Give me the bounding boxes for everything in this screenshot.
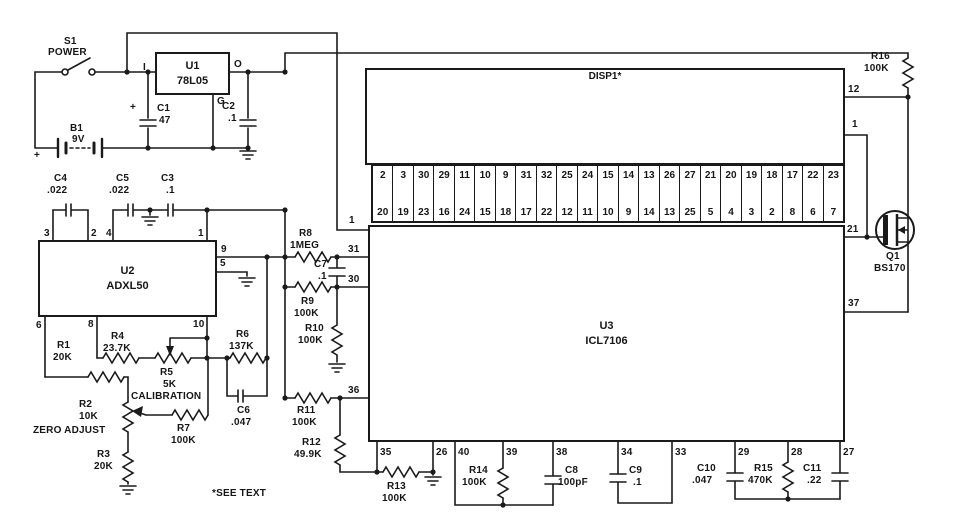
u2-ref: U2	[120, 264, 134, 278]
display-pin: 3	[400, 170, 406, 181]
u3-pin: 12	[562, 207, 573, 218]
display-pin: 32	[541, 170, 552, 181]
u3-pin: 14	[643, 207, 654, 218]
c6-value: .047	[231, 417, 251, 428]
r12-ref: R12	[302, 437, 321, 448]
lcd-display	[365, 68, 845, 165]
c11-value: .22	[807, 475, 822, 486]
u1-ref: U1	[185, 59, 199, 73]
u3-pin: 6	[810, 207, 816, 218]
u3-pin: 9	[626, 207, 632, 218]
q1-part: BS170	[874, 263, 906, 274]
r2-value: 10K	[79, 411, 98, 422]
u3-pin: 17	[521, 207, 532, 218]
u3-pin: 22	[541, 207, 552, 218]
u3-pin26: 26	[436, 447, 448, 458]
display-pin12: 12	[848, 84, 860, 95]
c1-plus: +	[130, 102, 136, 113]
pin-column: 1015	[475, 166, 495, 221]
b1-plus: +	[34, 150, 40, 161]
c9-value: .1	[633, 477, 642, 488]
c1-value: 47	[159, 115, 171, 126]
c9-ref: C9	[629, 465, 642, 476]
pin-column: 2916	[434, 166, 454, 221]
r4-ref: R4	[111, 331, 124, 342]
u3-pin: 11	[582, 207, 593, 218]
u3-pin: 7	[831, 207, 837, 218]
u3-pin: 25	[684, 207, 695, 218]
pin-column: 1124	[455, 166, 475, 221]
u2-pin10: 10	[193, 319, 205, 330]
c2-value: .1	[228, 113, 237, 124]
c1-ref: C1	[157, 103, 170, 114]
c5-value: .022	[109, 185, 129, 196]
c8-ref: C8	[565, 465, 578, 476]
u1-pin-in: I	[143, 62, 146, 73]
u3-pin30: 30	[348, 274, 360, 285]
pin-column: 3117	[516, 166, 536, 221]
u3-pin: 8	[790, 207, 796, 218]
r2-function-label: ZERO ADJUST	[33, 425, 105, 436]
pin-column: 204	[721, 166, 741, 221]
r5-ref: R5	[160, 367, 173, 378]
display-pin-block: 220 319 3023 2916 1124 1015 918 3117 322…	[371, 165, 845, 223]
c2-ref: C2	[222, 101, 235, 112]
display-pin: 30	[418, 170, 429, 181]
see-text-note: *SEE TEXT	[212, 488, 266, 499]
u3-pin: 18	[500, 207, 511, 218]
u3-pin: 20	[377, 207, 388, 218]
display-pin: 31	[521, 170, 532, 181]
r5-function-label: CALIBRATION	[131, 391, 201, 402]
u3-ref: U3	[599, 319, 613, 333]
c7-value: .1	[318, 271, 327, 282]
display-pin: 14	[623, 170, 634, 181]
display-pin: 23	[828, 170, 839, 181]
pin-column: 2613	[660, 166, 680, 221]
r9-value: 100K	[294, 308, 319, 319]
r11-value: 100K	[292, 417, 317, 428]
display-pin: 18	[766, 170, 777, 181]
u3-pin1: 1	[349, 215, 355, 226]
pin-column: 178	[783, 166, 803, 221]
c4-ref: C4	[54, 173, 67, 184]
r13-ref: R13	[387, 481, 406, 492]
r2-ref: R2	[79, 399, 92, 410]
r1-ref: R1	[57, 340, 70, 351]
u3-pin29: 29	[738, 447, 750, 458]
r9-ref: R9	[301, 296, 314, 307]
c3-ref: C3	[161, 173, 174, 184]
u1-pin-out: O	[234, 59, 242, 70]
u2-pin4: 4	[106, 228, 112, 239]
display-pin: 11	[459, 170, 470, 181]
b1-value: 9V	[72, 134, 85, 145]
pin-column: 215	[701, 166, 721, 221]
u1-part: 78L05	[177, 74, 208, 88]
u3-pin: 3	[749, 207, 755, 218]
u2-pin6: 6	[36, 320, 42, 331]
display-pin: 2	[380, 170, 386, 181]
pin-column: 182	[762, 166, 782, 221]
r7-ref: R7	[177, 423, 190, 434]
r13-value: 100K	[382, 493, 407, 504]
u3-pin33: 33	[675, 447, 687, 458]
schematic-page: DISP1* 18.88 U1 78L05 U2 ADXL50 U3 ICL71…	[0, 0, 967, 517]
r8-value: 1MEG	[290, 240, 319, 251]
u3-pin: 19	[398, 207, 409, 218]
u3-pin40: 40	[458, 447, 470, 458]
display-pin: 24	[582, 170, 593, 181]
c4-value: .022	[47, 185, 67, 196]
u3-pin: 13	[664, 207, 675, 218]
pin-column: 2411	[578, 166, 598, 221]
ic-u1-regulator: U1 78L05	[155, 52, 230, 95]
r14-ref: R14	[469, 465, 488, 476]
r1-value: 20K	[53, 352, 72, 363]
pin-column: 918	[496, 166, 516, 221]
r5-value: 5K	[163, 379, 176, 390]
display-pin: 21	[705, 170, 716, 181]
u3-pin38: 38	[556, 447, 568, 458]
display-pin: 26	[664, 170, 675, 181]
u2-pin3: 3	[44, 228, 50, 239]
display-pin: 29	[439, 170, 450, 181]
u3-pin21: 21	[847, 224, 859, 235]
u2-pin8: 8	[88, 319, 94, 330]
u3-pin36: 36	[348, 385, 360, 396]
u3-pin27: 27	[843, 447, 855, 458]
u3-pin37: 37	[848, 298, 860, 309]
c10-ref: C10	[697, 463, 716, 474]
display-label: DISP1*	[365, 71, 845, 82]
pin-column: 226	[803, 166, 823, 221]
ic-u3-adc: U3 ICL7106	[368, 225, 845, 442]
r15-ref: R15	[754, 463, 773, 474]
u3-pin: 16	[439, 207, 450, 218]
pin-column: 3222	[537, 166, 557, 221]
c5-ref: C5	[116, 173, 129, 184]
r7-value: 100K	[171, 435, 196, 446]
u3-pin28: 28	[791, 447, 803, 458]
u3-pin: 4	[728, 207, 734, 218]
pin-column: 1314	[639, 166, 659, 221]
display-pin: 15	[603, 170, 614, 181]
u3-pin: 24	[459, 207, 470, 218]
display-pin: 9	[503, 170, 509, 181]
display-pin: 20	[725, 170, 736, 181]
u3-pin: 15	[480, 207, 491, 218]
r16-value: 100K	[864, 63, 889, 74]
c6-ref: C6	[237, 405, 250, 416]
pin-column: 1510	[598, 166, 618, 221]
pin-column: 149	[619, 166, 639, 221]
r6-value: 137K	[229, 341, 254, 352]
display-pin: 17	[787, 170, 798, 181]
c8-value: 100pF	[558, 477, 588, 488]
display-pin: 27	[684, 170, 695, 181]
r3-ref: R3	[97, 449, 110, 460]
r12-value: 49.9K	[294, 449, 322, 460]
r10-value: 100K	[298, 335, 323, 346]
c7-ref: C7	[314, 259, 327, 270]
r10-ref: R10	[305, 323, 324, 334]
pin-column: 237	[824, 166, 843, 221]
pin-column: 3023	[414, 166, 434, 221]
u3-pin: 2	[769, 207, 775, 218]
display-pin: 25	[562, 170, 573, 181]
u2-pin1: 1	[198, 228, 204, 239]
s1-ref: S1	[64, 36, 77, 47]
u2-pin5: 5	[220, 258, 226, 269]
display-pin: 13	[643, 170, 654, 181]
u2-pin2: 2	[91, 228, 97, 239]
s1-label: POWER	[48, 47, 87, 58]
pin-column: 2725	[680, 166, 700, 221]
r15-value: 470K	[748, 475, 773, 486]
ic-u2-accelerometer: U2 ADXL50	[38, 240, 217, 317]
display-pin: 19	[746, 170, 757, 181]
pin-column: 2512	[557, 166, 577, 221]
pin-column: 220	[373, 166, 393, 221]
pin-column: 193	[742, 166, 762, 221]
u3-pin: 5	[708, 207, 714, 218]
display-pin1: 1	[852, 119, 858, 130]
u3-pin31: 31	[348, 244, 360, 255]
u3-pin39: 39	[506, 447, 518, 458]
c3-value: .1	[166, 185, 175, 196]
r8-ref: R8	[299, 228, 312, 239]
display-pin: 10	[480, 170, 491, 181]
r3-value: 20K	[94, 461, 113, 472]
q1-ref: Q1	[886, 251, 900, 262]
u3-pin: 10	[603, 207, 614, 218]
u3-pin: 23	[418, 207, 429, 218]
r16-ref: R16	[871, 51, 890, 62]
u3-part: ICL7106	[585, 334, 627, 348]
u3-pin35: 35	[380, 447, 392, 458]
display-pin: 22	[807, 170, 818, 181]
c11-ref: C11	[803, 463, 821, 474]
pin-column: 319	[393, 166, 413, 221]
r4-value: 23.7K	[103, 343, 131, 354]
r11-ref: R11	[297, 405, 315, 416]
b1-ref: B1	[70, 123, 83, 134]
u2-pin9: 9	[221, 244, 227, 255]
c10-value: .047	[692, 475, 712, 486]
u2-part: ADXL50	[106, 279, 148, 293]
r14-value: 100K	[462, 477, 487, 488]
u3-pin34: 34	[621, 447, 633, 458]
r6-ref: R6	[236, 329, 249, 340]
